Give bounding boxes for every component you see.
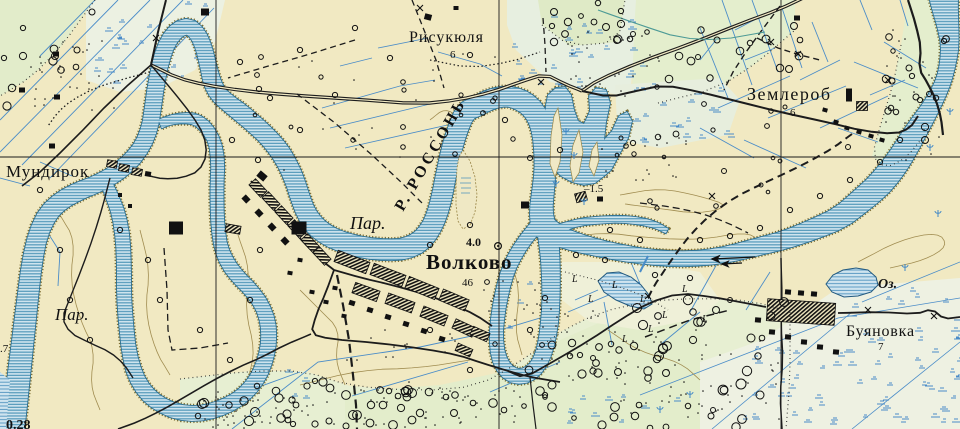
svg-text:0.28: 0.28	[6, 418, 31, 429]
svg-text:Пар.: Пар.	[54, 305, 89, 324]
svg-text:L: L	[701, 314, 708, 325]
svg-text:Пар.: Пар.	[349, 213, 386, 233]
svg-text:L: L	[587, 294, 594, 305]
svg-text:Мундирок: Мундирок	[6, 162, 89, 181]
svg-text:7: 7	[878, 341, 884, 353]
svg-text:L: L	[611, 280, 618, 291]
svg-text:Оз.: Оз.	[878, 277, 897, 292]
svg-text:Рисукюля: Рисукюля	[409, 29, 484, 46]
svg-text:Волково: Волково	[426, 250, 513, 274]
svg-text:46: 46	[462, 277, 474, 289]
svg-text:Буяновка: Буяновка	[846, 323, 915, 340]
svg-text:6: 6	[790, 107, 796, 119]
svg-text:L: L	[621, 334, 628, 345]
svg-text:–1.5: –1.5	[583, 183, 604, 195]
svg-text:.7: .7	[0, 343, 9, 355]
svg-text:Землероб: Землероб	[747, 84, 832, 104]
svg-text:L: L	[647, 324, 654, 335]
svg-text:L: L	[661, 310, 668, 321]
svg-text:4.0: 4.0	[466, 235, 481, 249]
svg-text:L: L	[571, 274, 578, 285]
svg-text:L: L	[681, 284, 688, 295]
svg-text:6: 6	[450, 49, 456, 61]
